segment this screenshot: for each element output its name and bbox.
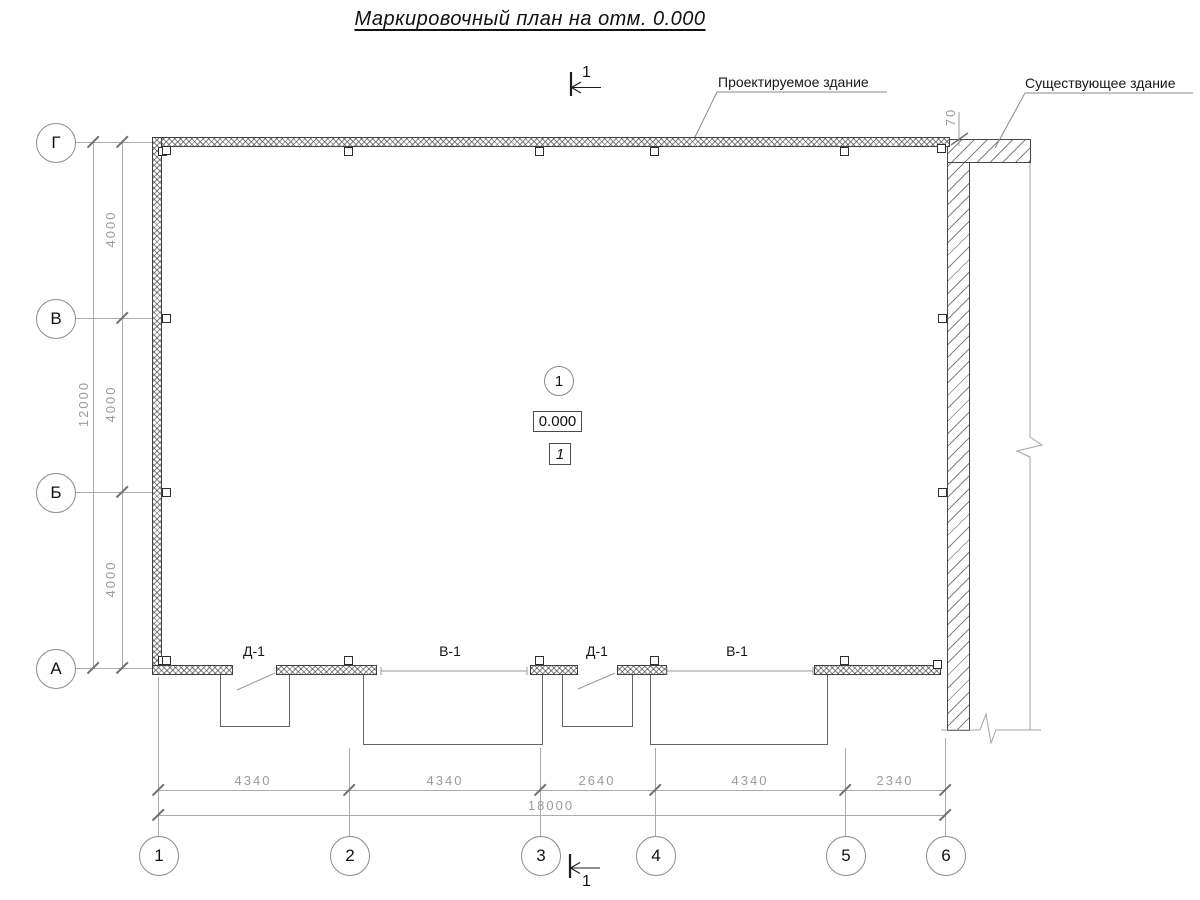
section-number-bottom: 1	[582, 873, 591, 891]
axis-bubble-col-1: 1	[139, 836, 179, 876]
node-bubble: 1	[544, 366, 574, 396]
axis-bubble-col-4: 4	[636, 836, 676, 876]
leader-line-existing	[995, 93, 1193, 148]
callout-projected-building: Проектируемое здание	[718, 74, 869, 90]
existing-edge-break-line-horizontal	[941, 714, 1041, 743]
drawing-lines-overlay	[0, 0, 1200, 900]
opening-span-line-2	[667, 667, 813, 675]
opening-span-line-1	[381, 667, 527, 675]
section-number-top: 1	[582, 64, 591, 82]
room-number-box: 1	[549, 443, 571, 465]
opening-label-door-1: Д-1	[232, 643, 276, 659]
opening-label-gate-2: В-1	[715, 643, 759, 659]
opening-label-door-2: Д-1	[575, 643, 619, 659]
axis-bubble-row-A: А	[36, 649, 76, 689]
door-swing-line-1	[237, 673, 275, 690]
leader-line-projected	[695, 92, 887, 137]
axis-bubble-col-6: 6	[926, 836, 966, 876]
callout-existing-building: Существующее здание	[1025, 75, 1176, 91]
door-swing-line-2	[578, 673, 615, 689]
axis-bubble-row-B: Б	[36, 473, 76, 513]
axis-bubble-col-3: 3	[521, 836, 561, 876]
axis-bubble-col-2: 2	[330, 836, 370, 876]
axis-bubble-col-5: 5	[826, 836, 866, 876]
floor-plan-canvas: Маркировочный план на отм. 0.000 4000 40…	[0, 0, 1200, 900]
existing-edge-break-line-vertical	[1017, 163, 1042, 730]
level-mark-box: 0.000	[533, 411, 582, 432]
axis-bubble-row-G: Г	[36, 123, 76, 163]
opening-label-gate-1: В-1	[428, 643, 472, 659]
axis-bubble-row-V: В	[36, 299, 76, 339]
